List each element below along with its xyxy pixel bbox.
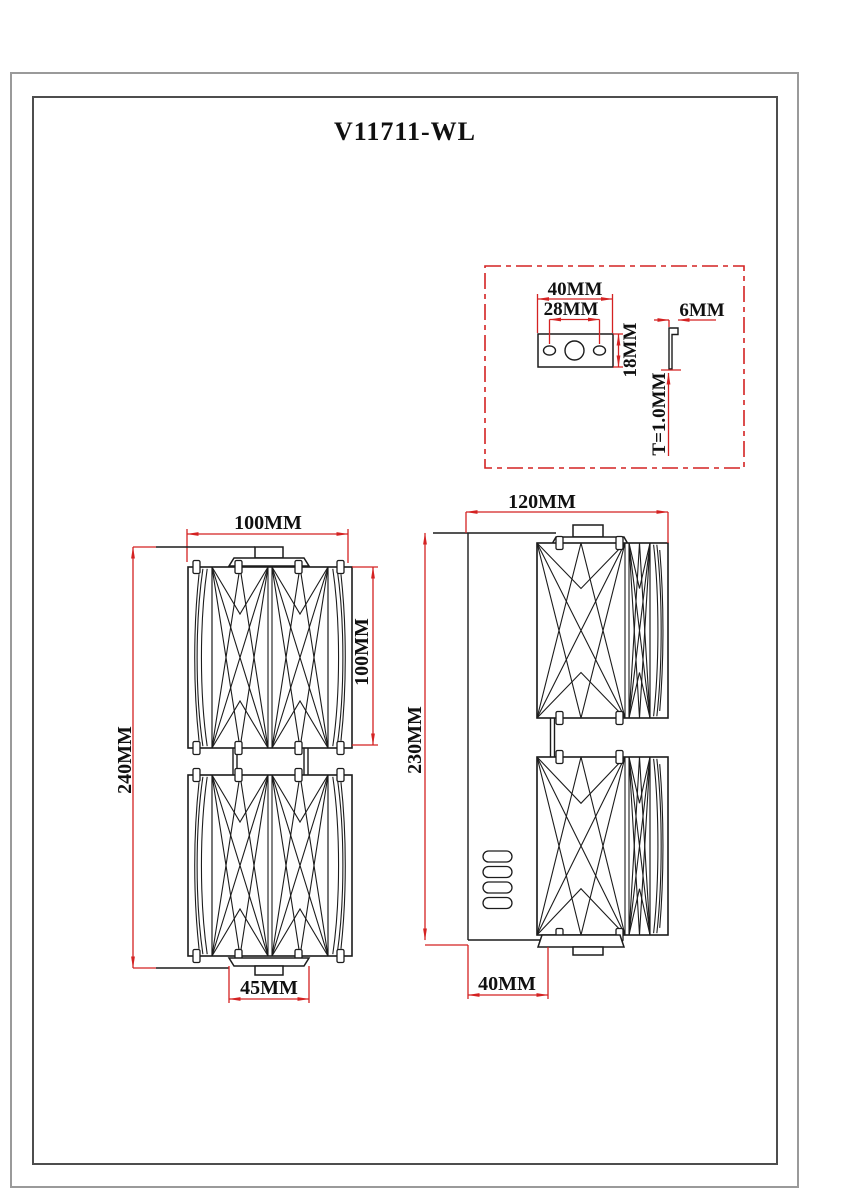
dim-bracket-height: 18MM xyxy=(620,323,641,378)
ext-lines-front-total-red xyxy=(133,547,156,968)
front-shade-upper xyxy=(188,567,352,748)
dim-front-total-height: 240MM xyxy=(114,726,136,794)
front-shade-lower xyxy=(188,775,352,956)
vent-slots xyxy=(483,851,512,909)
front-view: 100MM 100MM 240MM 45MM xyxy=(114,512,378,1003)
drawing-canvas: V11711-WL 40MM 28MM 18MM 6MM T=1.0MM xyxy=(0,0,848,1200)
outer-border xyxy=(11,73,798,1187)
side-bottom-stem xyxy=(573,947,603,955)
front-bottom-stem xyxy=(255,966,283,975)
bracket-profile xyxy=(669,328,678,369)
dim-side-height: 230MM xyxy=(404,706,426,774)
dim-bracket-width: 40MM xyxy=(548,279,603,300)
dim-side-depth: 120MM xyxy=(508,491,576,513)
backplate-bottom-edge xyxy=(468,940,548,945)
dim-front-width: 100MM xyxy=(234,512,302,534)
dim-bracket-hook: 6MM xyxy=(679,300,724,321)
dim-bracket-holes: 28MM xyxy=(544,299,599,320)
dim-bracket-thickness: T=1.0MM xyxy=(649,372,670,455)
side-view: 120MM 230MM 40MM xyxy=(404,491,668,999)
side-top-stem xyxy=(573,525,603,537)
dim-front-base-width: 45MM xyxy=(240,977,298,999)
bracket-detail-view: 40MM 28MM 18MM 6MM T=1.0MM xyxy=(485,266,744,468)
technical-drawing-page: V11711-WL 40MM 28MM 18MM 6MM T=1.0MM xyxy=(0,0,848,1200)
dim-front-height: 100MM xyxy=(351,618,373,686)
front-bottom-plate xyxy=(229,958,309,966)
side-bottom-plate xyxy=(538,935,624,947)
drawing-title: V11711-WL xyxy=(334,117,476,146)
dim-side-base-depth: 40MM xyxy=(478,973,536,995)
connector-rod xyxy=(551,718,555,757)
front-top-stem xyxy=(255,547,283,558)
